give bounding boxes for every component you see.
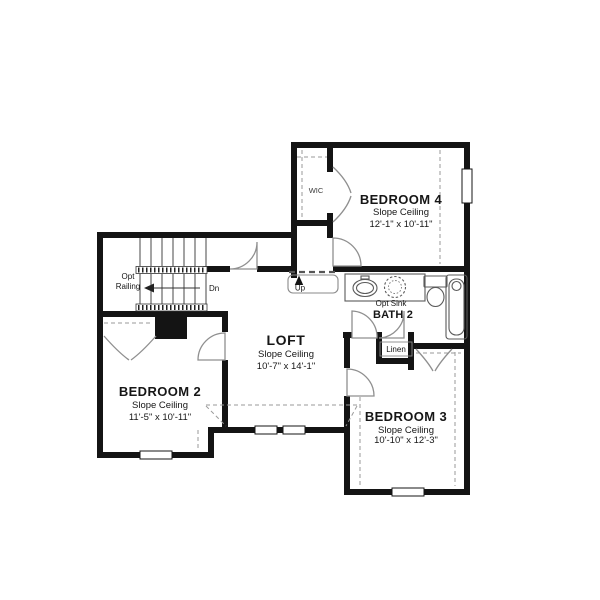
bathtub-icon bbox=[446, 275, 467, 339]
chase bbox=[155, 317, 187, 339]
opt-railing-label: Opt bbox=[122, 272, 136, 281]
bath2-name: BATH 2 bbox=[373, 309, 413, 321]
opt-sink-label: Opt Sink bbox=[376, 299, 408, 308]
window bbox=[255, 426, 277, 434]
stairs-down-label: Dn bbox=[209, 284, 219, 293]
bedroom4-name: BEDROOM 4 bbox=[360, 192, 443, 207]
bedroom2-dims: 11'-5" x 10'-11" bbox=[129, 412, 191, 423]
window bbox=[392, 488, 424, 496]
opt-sink-icon bbox=[385, 277, 406, 298]
wic-double-doors bbox=[333, 167, 351, 222]
bedroom4-ceiling: Slope Ceiling bbox=[373, 207, 429, 218]
bedroom3-door bbox=[347, 369, 374, 396]
bedroom2-name: BEDROOM 2 bbox=[119, 384, 201, 399]
floor-plan-drawing: WIC BEDROOM 4 Slope Ceiling 12'-1" x 10'… bbox=[0, 0, 600, 600]
bedroom2-ceiling: Slope Ceiling bbox=[132, 400, 188, 411]
opt-railing-label: Railing bbox=[116, 282, 140, 291]
bedroom4-dims: 12'-1" x 10'-11" bbox=[369, 219, 432, 230]
wic-label: WIC bbox=[309, 186, 324, 195]
floor-plan-page: WIC BEDROOM 4 Slope Ceiling 12'-1" x 10'… bbox=[0, 0, 600, 600]
toilet-icon bbox=[424, 276, 447, 307]
bedroom2-closet-doors bbox=[104, 336, 156, 360]
loft-hall-door bbox=[230, 242, 257, 269]
loft-ceiling: Slope Ceiling bbox=[258, 349, 314, 360]
window bbox=[462, 169, 472, 203]
bedroom2-door bbox=[198, 333, 225, 360]
staircase bbox=[136, 238, 207, 311]
linen-label: Linen bbox=[386, 345, 406, 354]
stair-direction-arrow bbox=[144, 284, 200, 293]
window bbox=[283, 426, 305, 434]
bedroom3-name: BEDROOM 3 bbox=[365, 409, 447, 424]
sink-icon bbox=[353, 276, 377, 297]
window bbox=[140, 451, 172, 459]
bedroom3-closet-doors bbox=[416, 349, 452, 371]
attic-up-label: Up bbox=[295, 284, 306, 293]
loft-dims: 10'-7" x 14'-1" bbox=[257, 361, 315, 372]
loft-name: LOFT bbox=[267, 332, 306, 348]
bedroom3-dims: 10'-10" x 12'-3" bbox=[374, 435, 438, 446]
bedroom4-door bbox=[333, 238, 361, 266]
